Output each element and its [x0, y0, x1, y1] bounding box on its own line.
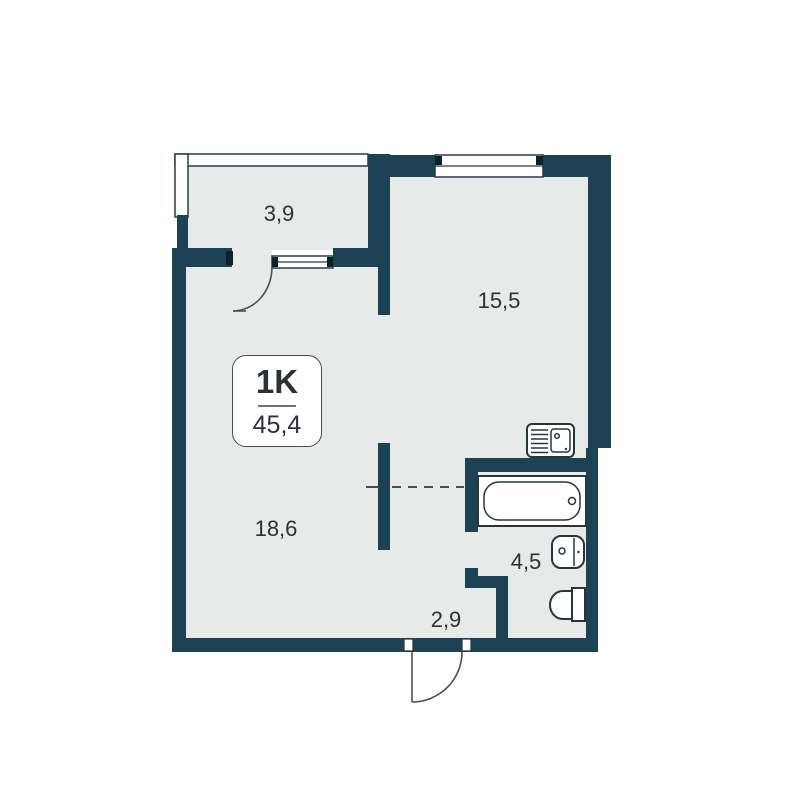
balcony-door-gap-floor	[232, 248, 272, 268]
wall-partition-stub	[378, 443, 390, 550]
hallway-area-label: 2,9	[431, 607, 462, 633]
washbasin-icon	[552, 536, 584, 568]
balcony-glazing-top	[175, 154, 368, 166]
wall-bottom	[172, 638, 598, 652]
floor-plan: 3,9 15,5 18,6 4,5 2,9 1K 45,4	[0, 0, 800, 800]
balcony-glazing-left	[175, 154, 188, 217]
wall-balcony-kitchen	[368, 154, 390, 250]
unit-type-label: 1K	[256, 365, 298, 398]
kitchen-window-icon	[435, 155, 543, 177]
wall-bathroom-left-upper	[465, 458, 478, 532]
bathtub-icon	[478, 476, 586, 526]
toilet-icon	[550, 588, 585, 621]
balcony-area-label: 3,9	[264, 201, 295, 227]
divider	[258, 405, 296, 407]
kitchen-area-label: 15,5	[478, 288, 521, 314]
wall-jamb-cap	[226, 251, 233, 265]
wall-balcony-bottom-right	[333, 248, 390, 267]
living-area-label: 18,6	[255, 516, 298, 542]
total-area-label: 45,4	[253, 413, 302, 438]
wall-bathroom-top	[465, 458, 598, 472]
wall-living-kitchen-divider	[378, 267, 390, 315]
wall-balcony-left-pier	[177, 215, 188, 250]
wall-hallway-right	[496, 576, 508, 652]
wall-balcony-bottom-left	[172, 248, 232, 267]
wall-right-lower	[586, 448, 598, 652]
kitchen-sink-icon	[527, 424, 574, 457]
unit-info-card: 1K 45,4	[232, 355, 322, 447]
balcony-window-icon	[272, 256, 333, 268]
floor-plan-drawing	[0, 0, 800, 800]
wall-left	[172, 248, 186, 652]
bathroom-area-label: 4,5	[511, 549, 542, 575]
wall-right-upper	[588, 155, 611, 448]
